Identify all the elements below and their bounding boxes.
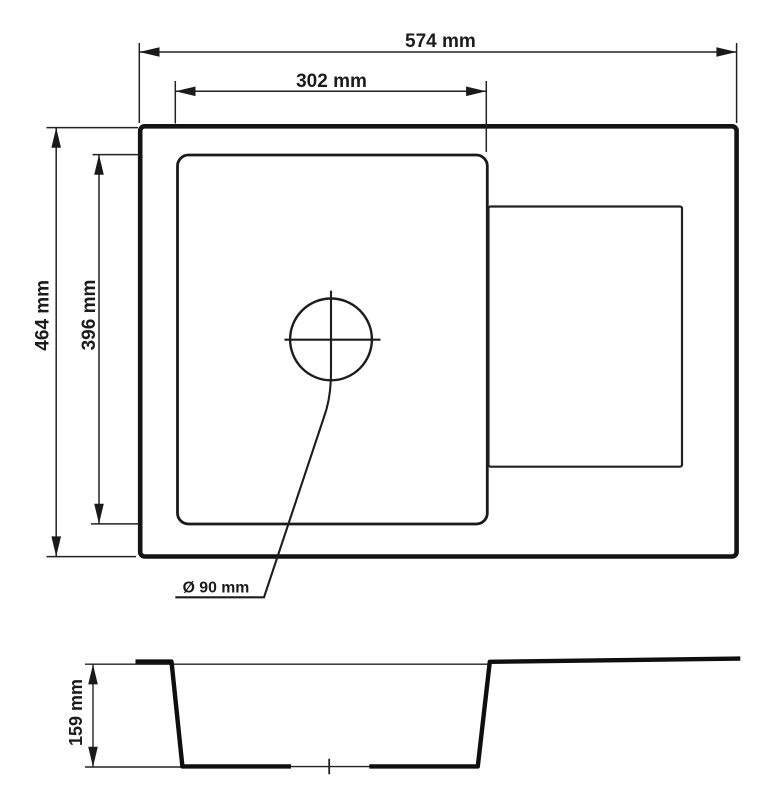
- svg-text:159 mm: 159 mm: [66, 679, 86, 746]
- svg-text:302 mm: 302 mm: [296, 71, 367, 92]
- svg-text:464 mm: 464 mm: [33, 280, 54, 351]
- svg-text:396 mm: 396 mm: [79, 280, 100, 351]
- svg-text:Ø 90 mm: Ø 90 mm: [183, 579, 250, 596]
- svg-text:574 mm: 574 mm: [405, 31, 476, 52]
